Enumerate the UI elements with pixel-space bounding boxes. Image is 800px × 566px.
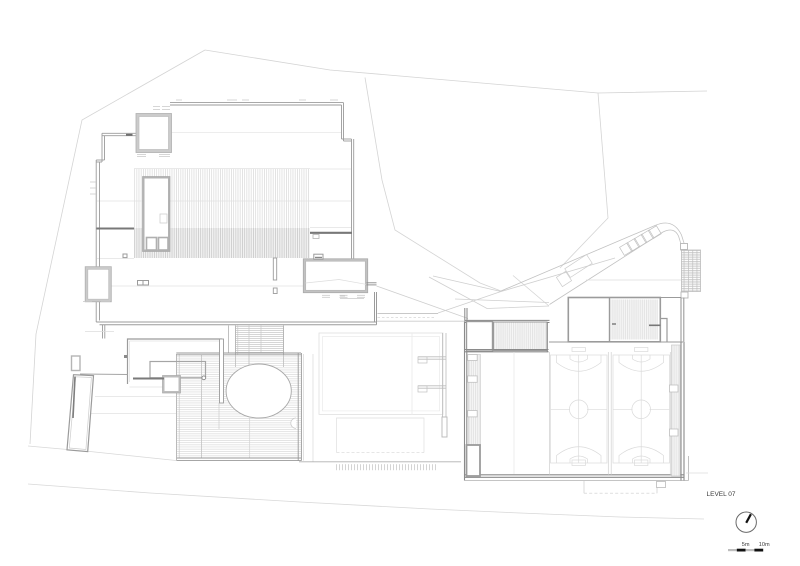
svg-text:5m: 5m bbox=[742, 542, 750, 548]
svg-text:10m: 10m bbox=[759, 542, 770, 548]
svg-text:LEVEL 07: LEVEL 07 bbox=[707, 491, 736, 498]
